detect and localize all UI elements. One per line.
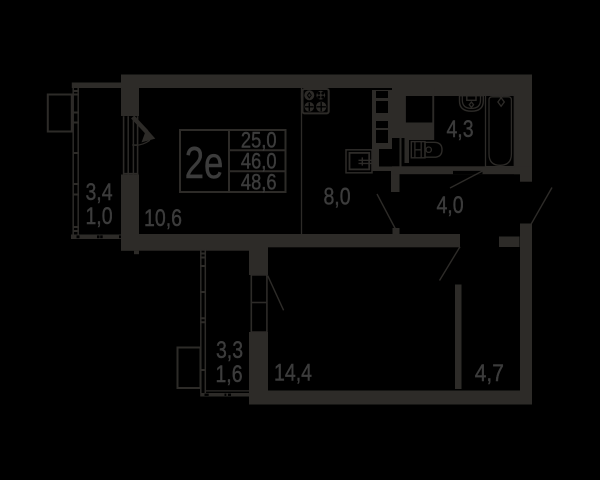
svg-text:4,7: 4,7: [475, 358, 504, 386]
svg-text:1,0: 1,0: [85, 202, 112, 230]
svg-text:4,3: 4,3: [446, 115, 473, 143]
svg-text:1,6: 1,6: [215, 360, 242, 388]
svg-text:4,0: 4,0: [436, 191, 463, 219]
svg-text:10,6: 10,6: [144, 204, 182, 232]
svg-text:8,0: 8,0: [323, 182, 350, 210]
svg-text:14,4: 14,4: [274, 358, 312, 386]
svg-text:2е: 2е: [185, 139, 224, 188]
svg-text:48,6: 48,6: [241, 171, 277, 195]
